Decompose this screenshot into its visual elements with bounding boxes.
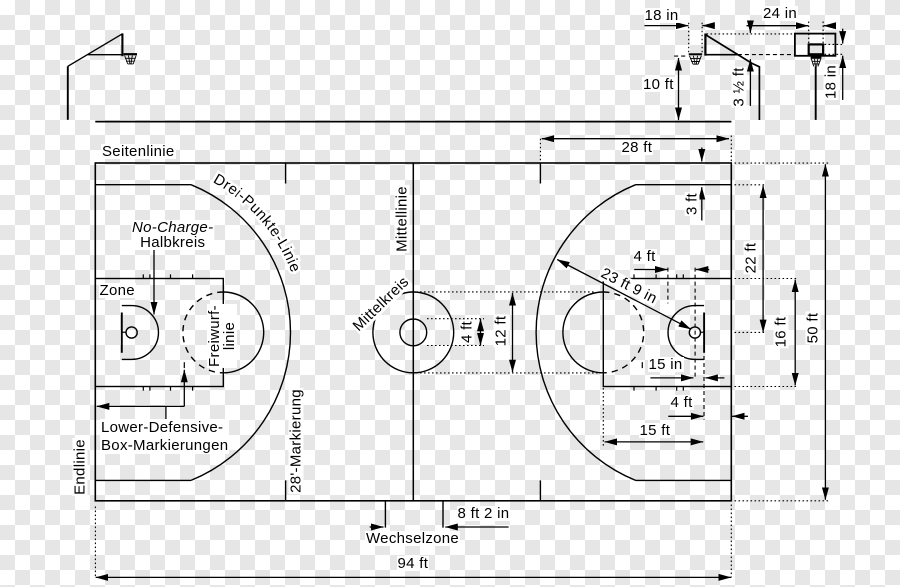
svg-text:Drei-Punkte-Linie: Drei-Punkte-Linie (211, 171, 304, 275)
